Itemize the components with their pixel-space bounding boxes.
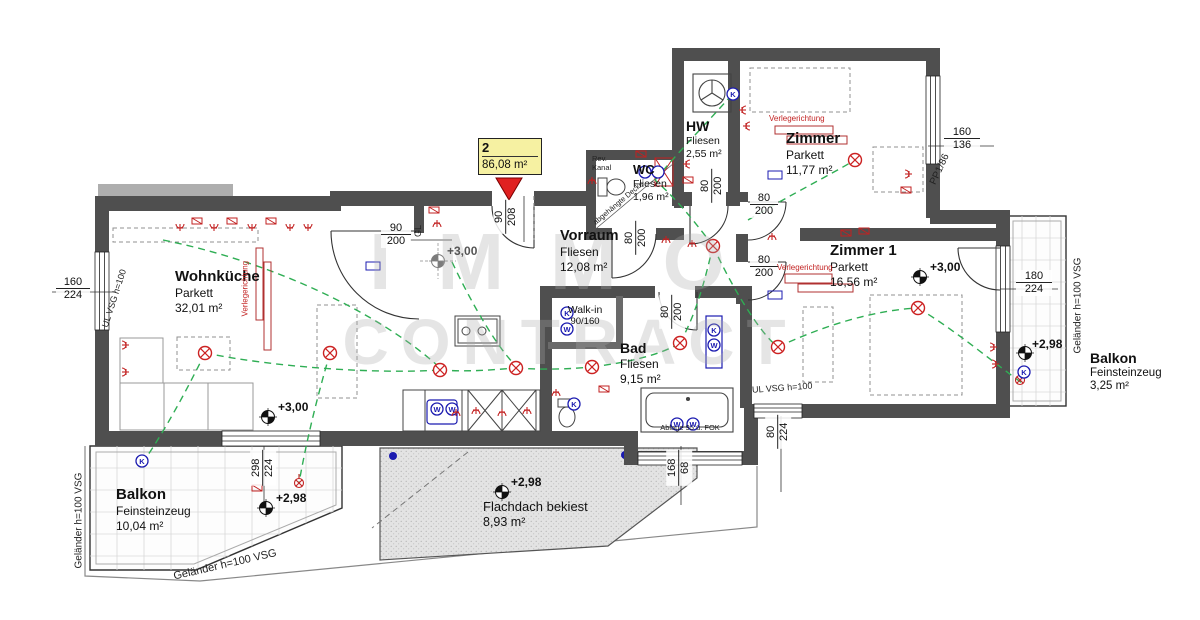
unit-pointer-icon [496,178,522,200]
room-label-hw: HW Fliesen 2,55 m² [686,118,722,160]
connection-letter: W [687,420,699,429]
blue-box-icon [366,262,380,270]
unit-number: 2 [482,140,538,157]
ceiling-light-icon [849,154,862,167]
connection-letter: W [561,325,573,334]
dim-door-balkon-sw: 298 224 [250,450,276,486]
washing-machine-icon [693,74,731,112]
junction-box-icon [683,177,693,183]
socket-icon [905,170,912,178]
stove-island [455,316,500,346]
level-wohnkueche: +3,00 [278,400,308,414]
junction-box-icon [599,386,609,392]
note-rev-kanal: Rev. Kanal [592,155,626,172]
room-label-bad: Bad Fliesen 9,15 m² [620,340,661,386]
note-railing-east: Geländer h=100 VSG [1073,244,1084,354]
sofa [120,338,253,430]
roof-drain-icon [389,452,397,460]
ceiling-light-icon [707,240,720,253]
socket-icon [683,160,690,168]
dim-door-wohnkueche: 90 200 [381,222,411,248]
connection-letter: K [708,326,720,335]
level-flachdach: +2,98 [511,475,541,489]
connection-letter: K [561,309,573,318]
dim-door-hw: 80 200 [699,169,725,203]
junction-box-icon [429,207,439,213]
junction-box-icon [227,218,237,224]
note-railing-left: Geländer h=100 VSG [74,459,85,569]
dim-door-balkon-ost: 180 224 [1016,270,1052,296]
socket-icon [210,224,218,231]
socket-icon [286,224,294,231]
ceiling-light-icon [199,347,212,360]
dim-window-bad: 168 68 [666,450,692,486]
connection-letter: K [727,90,739,99]
connection-letter: W [431,405,443,414]
level-zimmer1: +3,00 [930,260,960,274]
level-vorraum: +3,00 [447,244,477,258]
unit-area: 86,08 m² [482,157,538,171]
connection-letter: K [568,400,580,409]
connection-letter: K [1018,368,1030,377]
dim-entry-door: 90 208 [493,200,519,234]
socket-icon [433,220,441,227]
room-label-balkon-ost: Balkon Feinsteinzeug 3,25 m² [1090,350,1162,392]
note-gl: GL [413,225,423,237]
connection-letter: K [136,457,148,466]
blue-box-icon [768,171,782,179]
connection-letter: W [708,341,720,350]
note-verlegerichtung-wohnkueche: Verlegerichtung [241,247,250,317]
room-label-balkon-sw: Balkon Feinsteinzeug 10,04 m² [116,486,191,533]
room-label-vorraum: Vorraum Fliesen 12,08 m² [560,228,619,274]
ceiling-light-icon [586,361,599,374]
junction-box-icon [192,218,202,224]
socket-icon [304,224,312,231]
ceiling-light-icon [912,302,925,315]
dim-door-wc: 80 200 [623,221,649,255]
unit-label: 2 86,08 m² [478,138,542,175]
socket-icon [743,122,750,130]
connection-letter: W [446,405,458,414]
socket-icon [122,341,129,349]
ceiling-light-icon [510,362,523,375]
ceiling-light-icon [772,341,785,354]
level-balkon-sw: +2,98 [276,491,306,505]
room-label-flachdach: Flachdach bekiest 8,93 m² [483,498,588,529]
dim-door-bad: 80 200 [659,295,685,329]
ceiling-light-icon [674,337,687,350]
socket-icon [176,224,184,231]
socket-icon [739,106,746,114]
kitchen-counter [403,390,540,431]
room-label-zimmer1: Zimmer 1 Parkett 16,56 m² [830,242,897,289]
socket-icon [122,368,129,376]
ceiling-light-icon [434,364,447,377]
dim-door-zimmer: 80 200 [750,192,778,218]
socket-icon [248,224,256,231]
note-verlegerichtung-zimmer: Verlegerichtung [769,114,825,123]
dim-window-gang: 80 224 [765,415,791,449]
level-marker-icon [259,408,277,426]
dim-window-left: 160 224 [56,276,90,302]
ceiling-light-icon [324,347,337,360]
floor-plan: IMMO CONTRACT 2 86,08 m² Wohnküche Parke… [0,0,1200,620]
socket-icon [688,240,696,247]
socket-icon [990,343,997,351]
dim-door-zimmer1: 80 200 [750,254,778,280]
room-label-zimmer: Zimmer Parkett 11,77 m² [786,130,840,177]
socket-icon [552,389,560,396]
note-verlegerichtung-zimmer1: Verlegerichtung [777,263,833,272]
connection-letter: W [671,420,683,429]
level-marker-icon [911,268,929,286]
blue-box-icon [768,291,782,299]
level-balkon-ost: +2,98 [1032,337,1062,351]
junction-box-icon [266,218,276,224]
